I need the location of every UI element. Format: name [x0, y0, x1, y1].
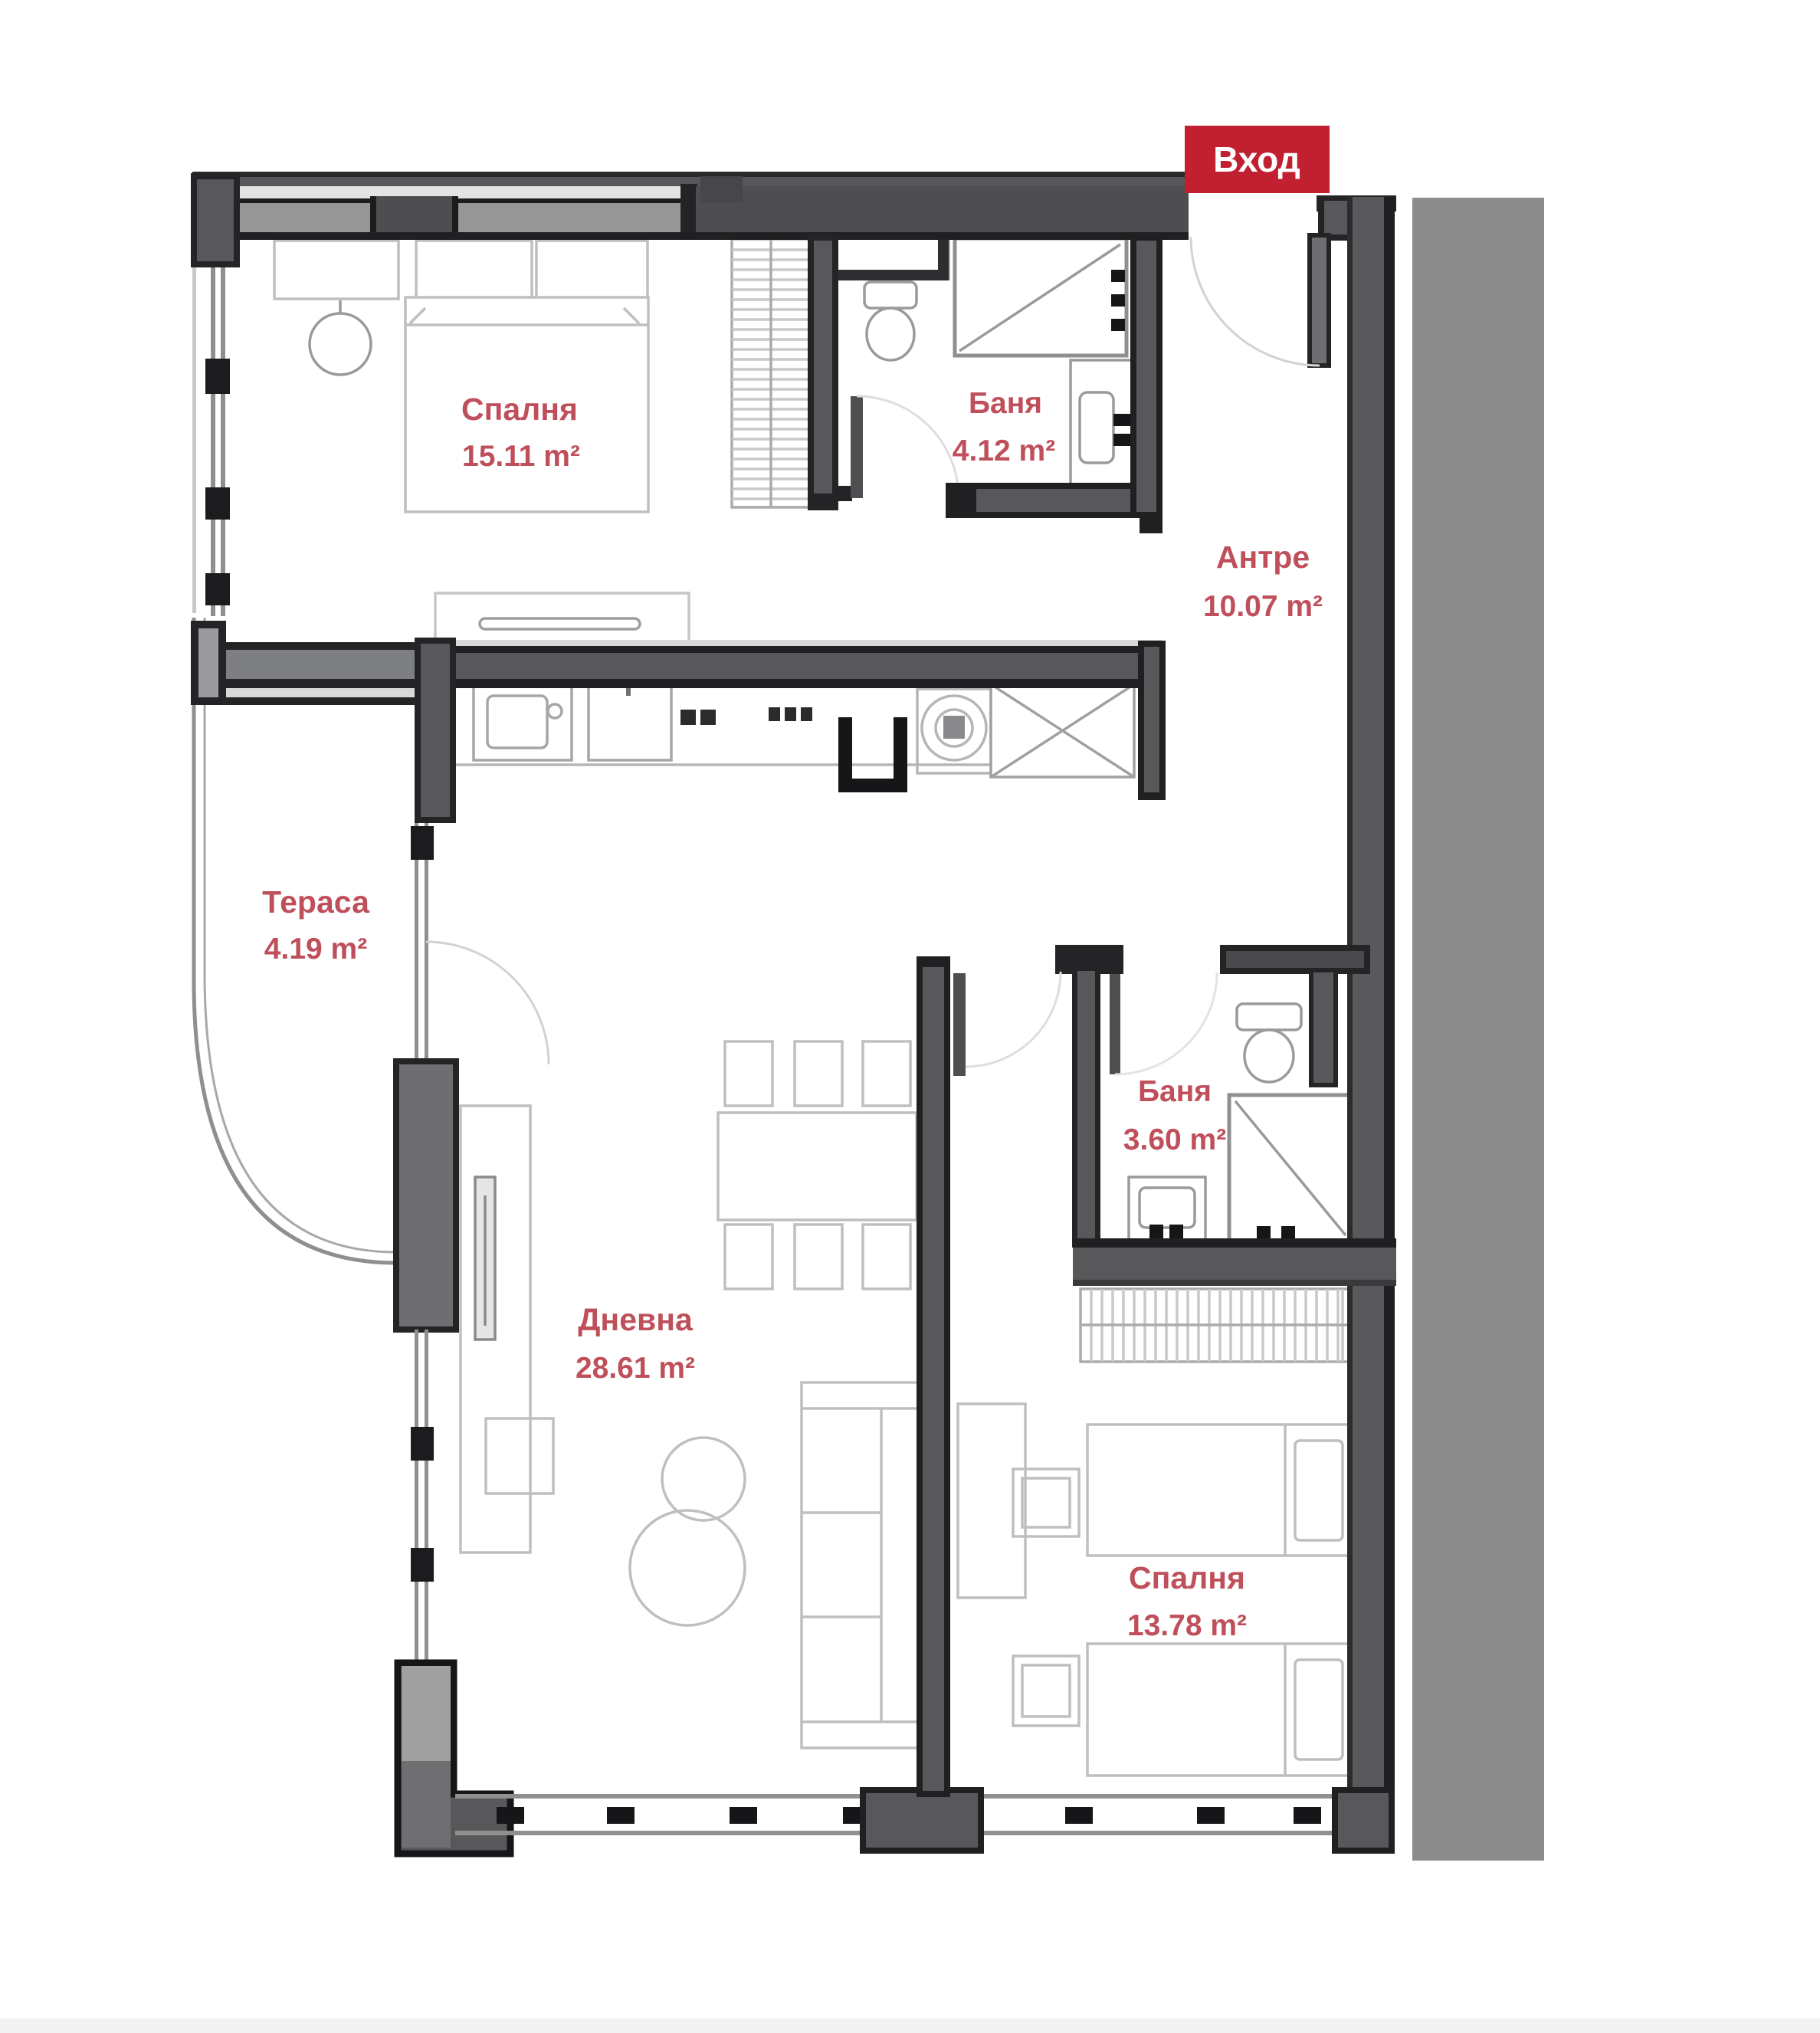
svg-text:15.11 m²: 15.11 m² [462, 440, 580, 473]
svg-text:Спалня: Спалня [1129, 1560, 1245, 1595]
svg-text:4.12 m²: 4.12 m² [953, 434, 1055, 467]
svg-text:Спалня: Спалня [461, 392, 578, 427]
svg-text:3.60 m²: 3.60 m² [1123, 1123, 1226, 1156]
svg-text:28.61 m²: 28.61 m² [576, 1352, 695, 1385]
svg-text:Тераса: Тераса [262, 884, 370, 920]
svg-text:Баня: Баня [1138, 1075, 1212, 1108]
svg-text:4.19 m²: 4.19 m² [264, 933, 367, 966]
svg-text:Вход: Вход [1213, 139, 1300, 179]
svg-text:Баня: Баня [969, 387, 1042, 420]
svg-text:Дневна: Дневна [578, 1302, 694, 1337]
svg-text:13.78 m²: 13.78 m² [1127, 1609, 1247, 1642]
svg-text:10.07 m²: 10.07 m² [1203, 590, 1323, 623]
svg-text:Антре: Антре [1216, 539, 1310, 575]
